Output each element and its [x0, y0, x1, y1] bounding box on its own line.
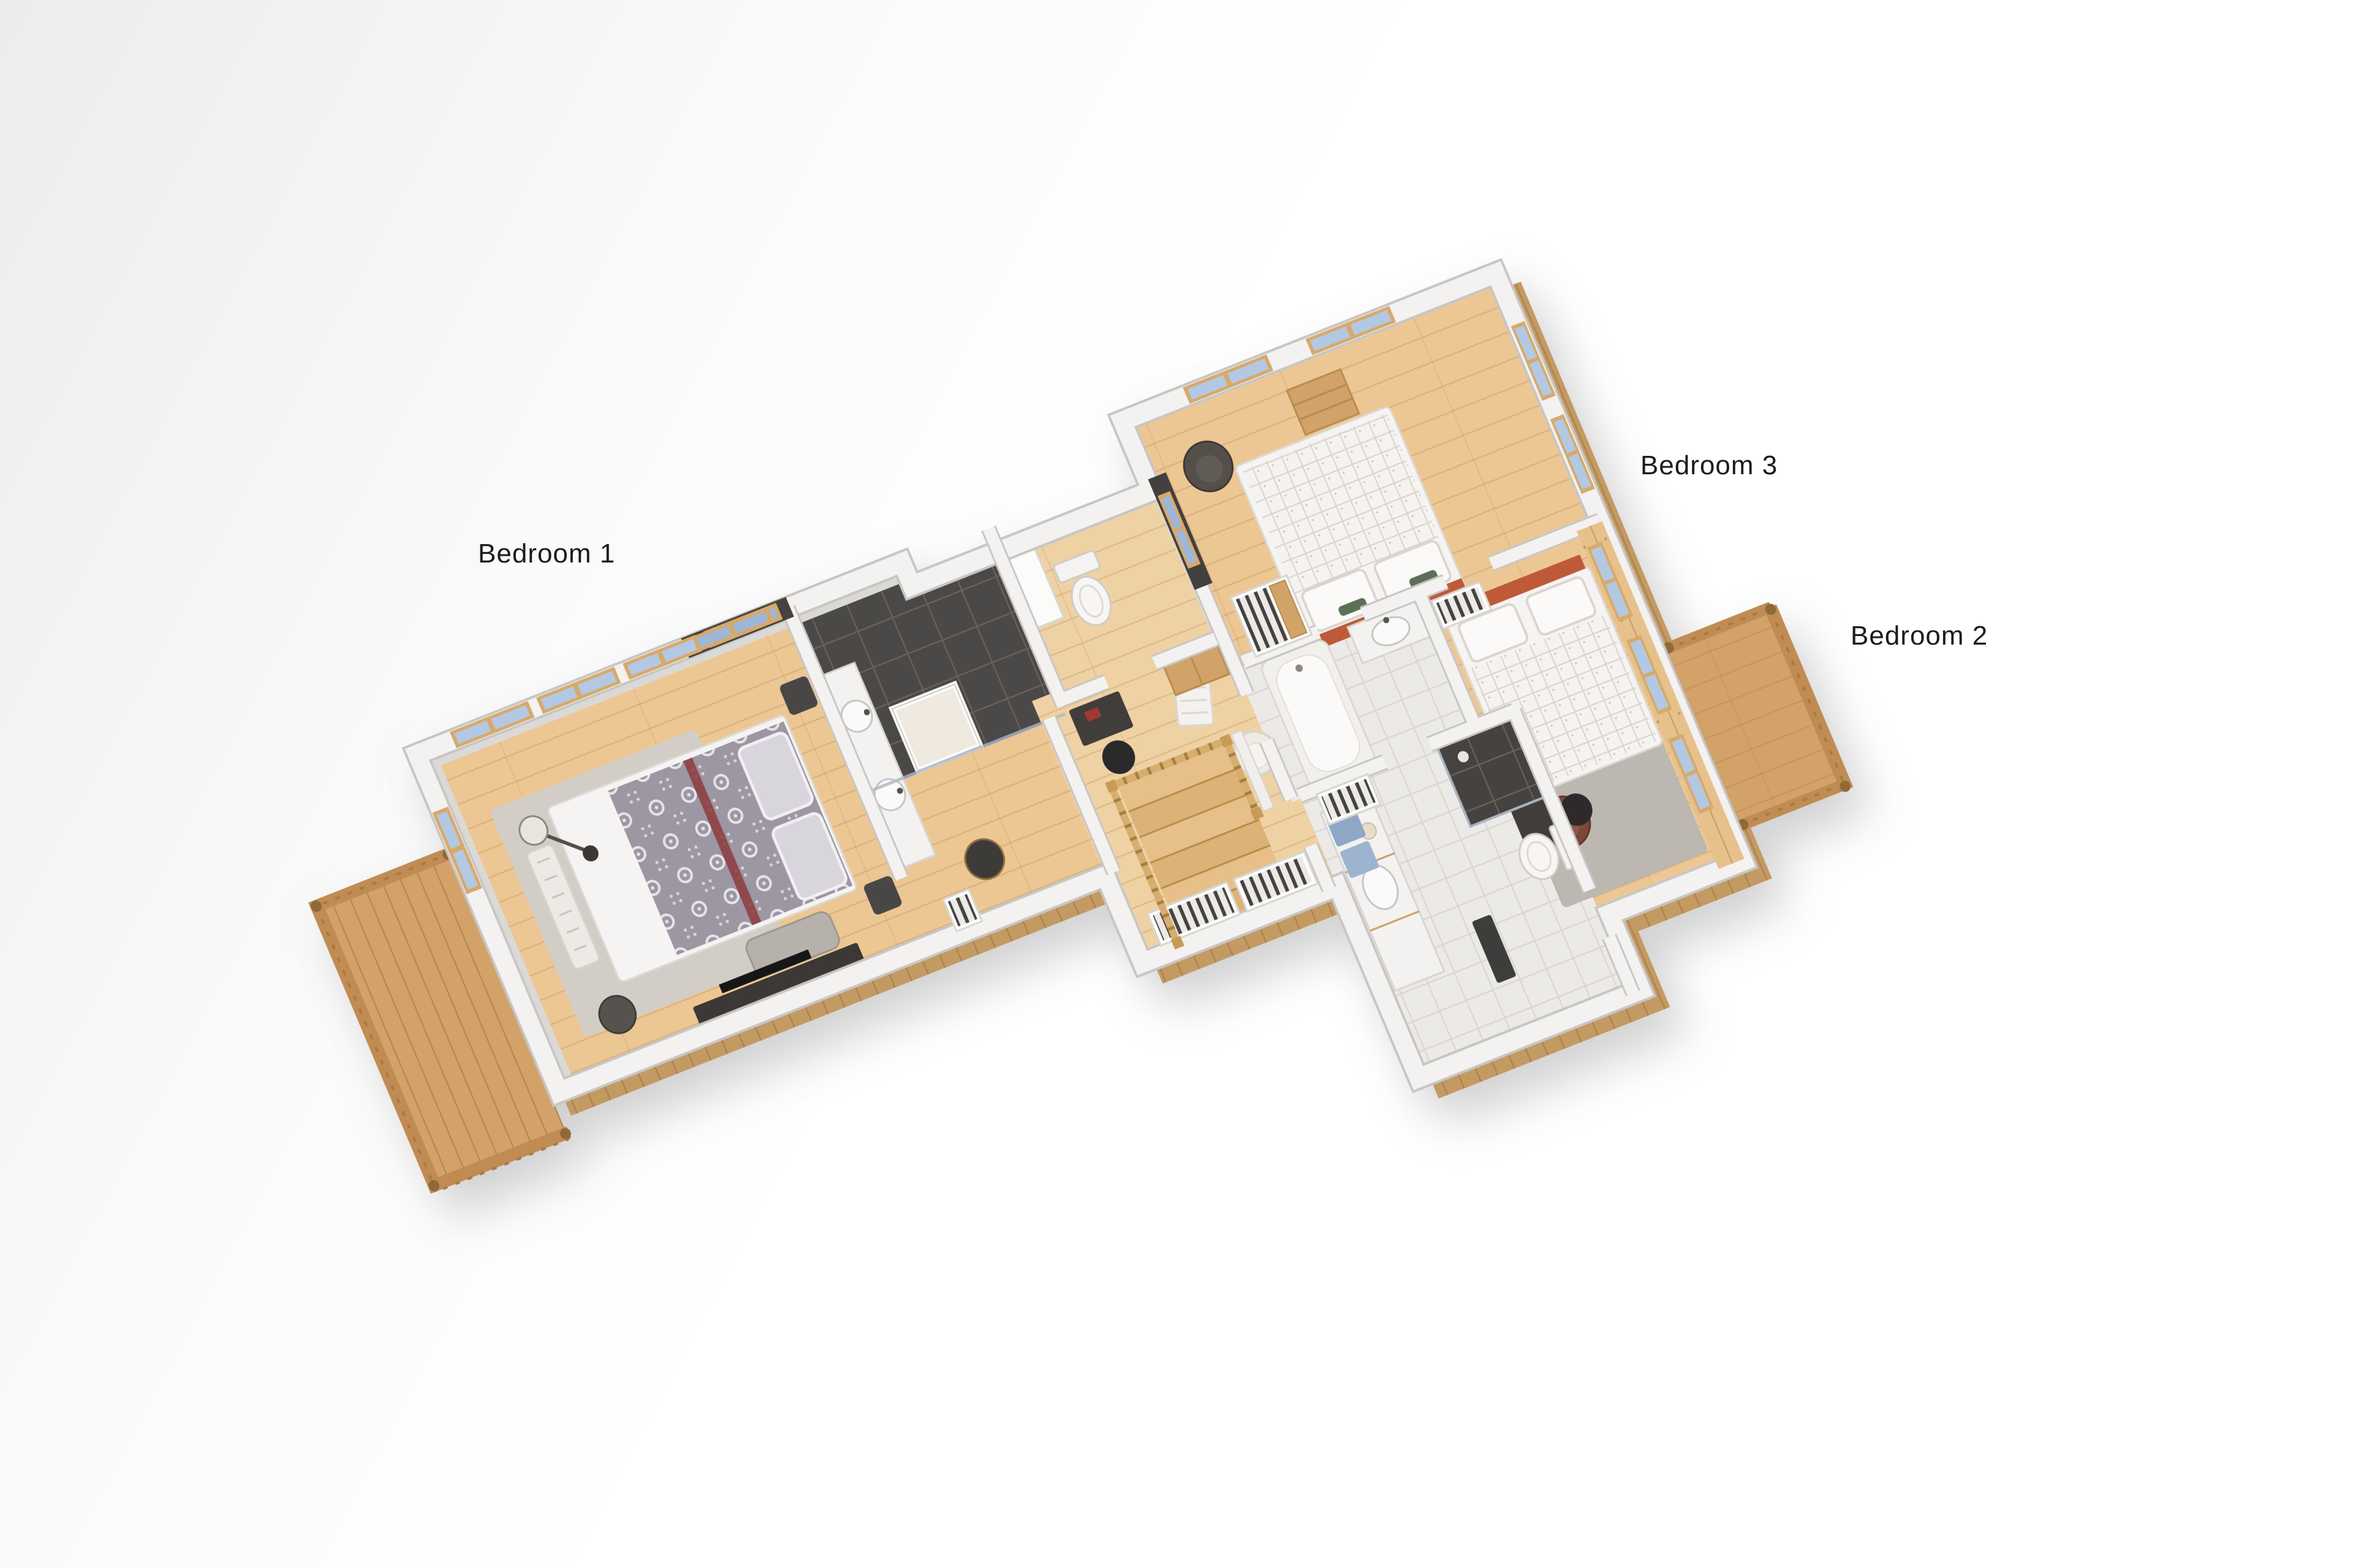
building — [247, 218, 1906, 1454]
label-bedroom-1: Bedroom 1 — [478, 539, 615, 569]
label-bedroom-2: Bedroom 2 — [1851, 621, 1988, 651]
label-bedroom-3: Bedroom 3 — [1640, 451, 1778, 480]
floorplan-page: Bedroom 1 Bedroom 3 Bedroom 2 — [0, 0, 2353, 1568]
floorplan-3d-render — [0, 0, 2353, 1568]
